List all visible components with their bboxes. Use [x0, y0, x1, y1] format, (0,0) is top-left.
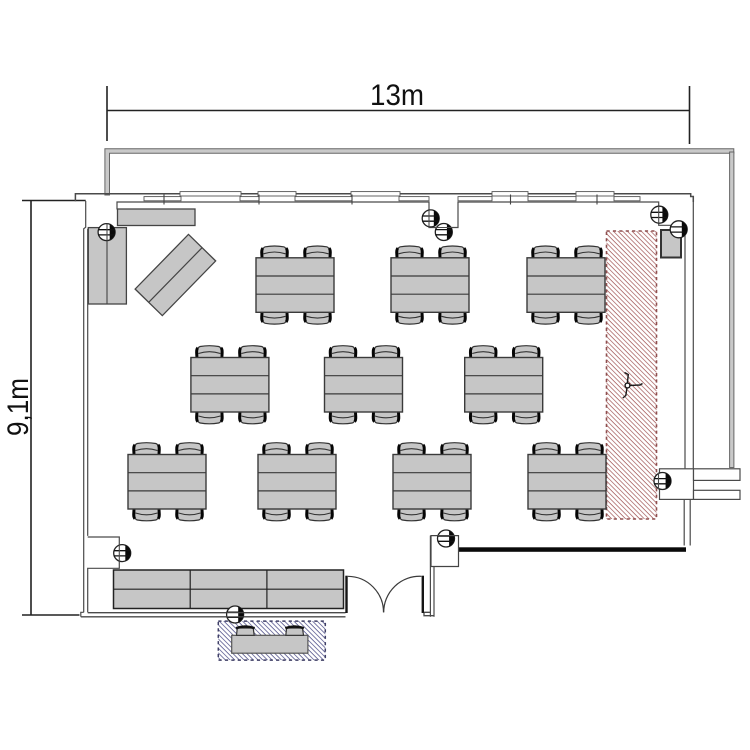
svg-text:9,1m: 9,1m	[2, 378, 35, 436]
svg-text:13m: 13m	[370, 79, 424, 112]
